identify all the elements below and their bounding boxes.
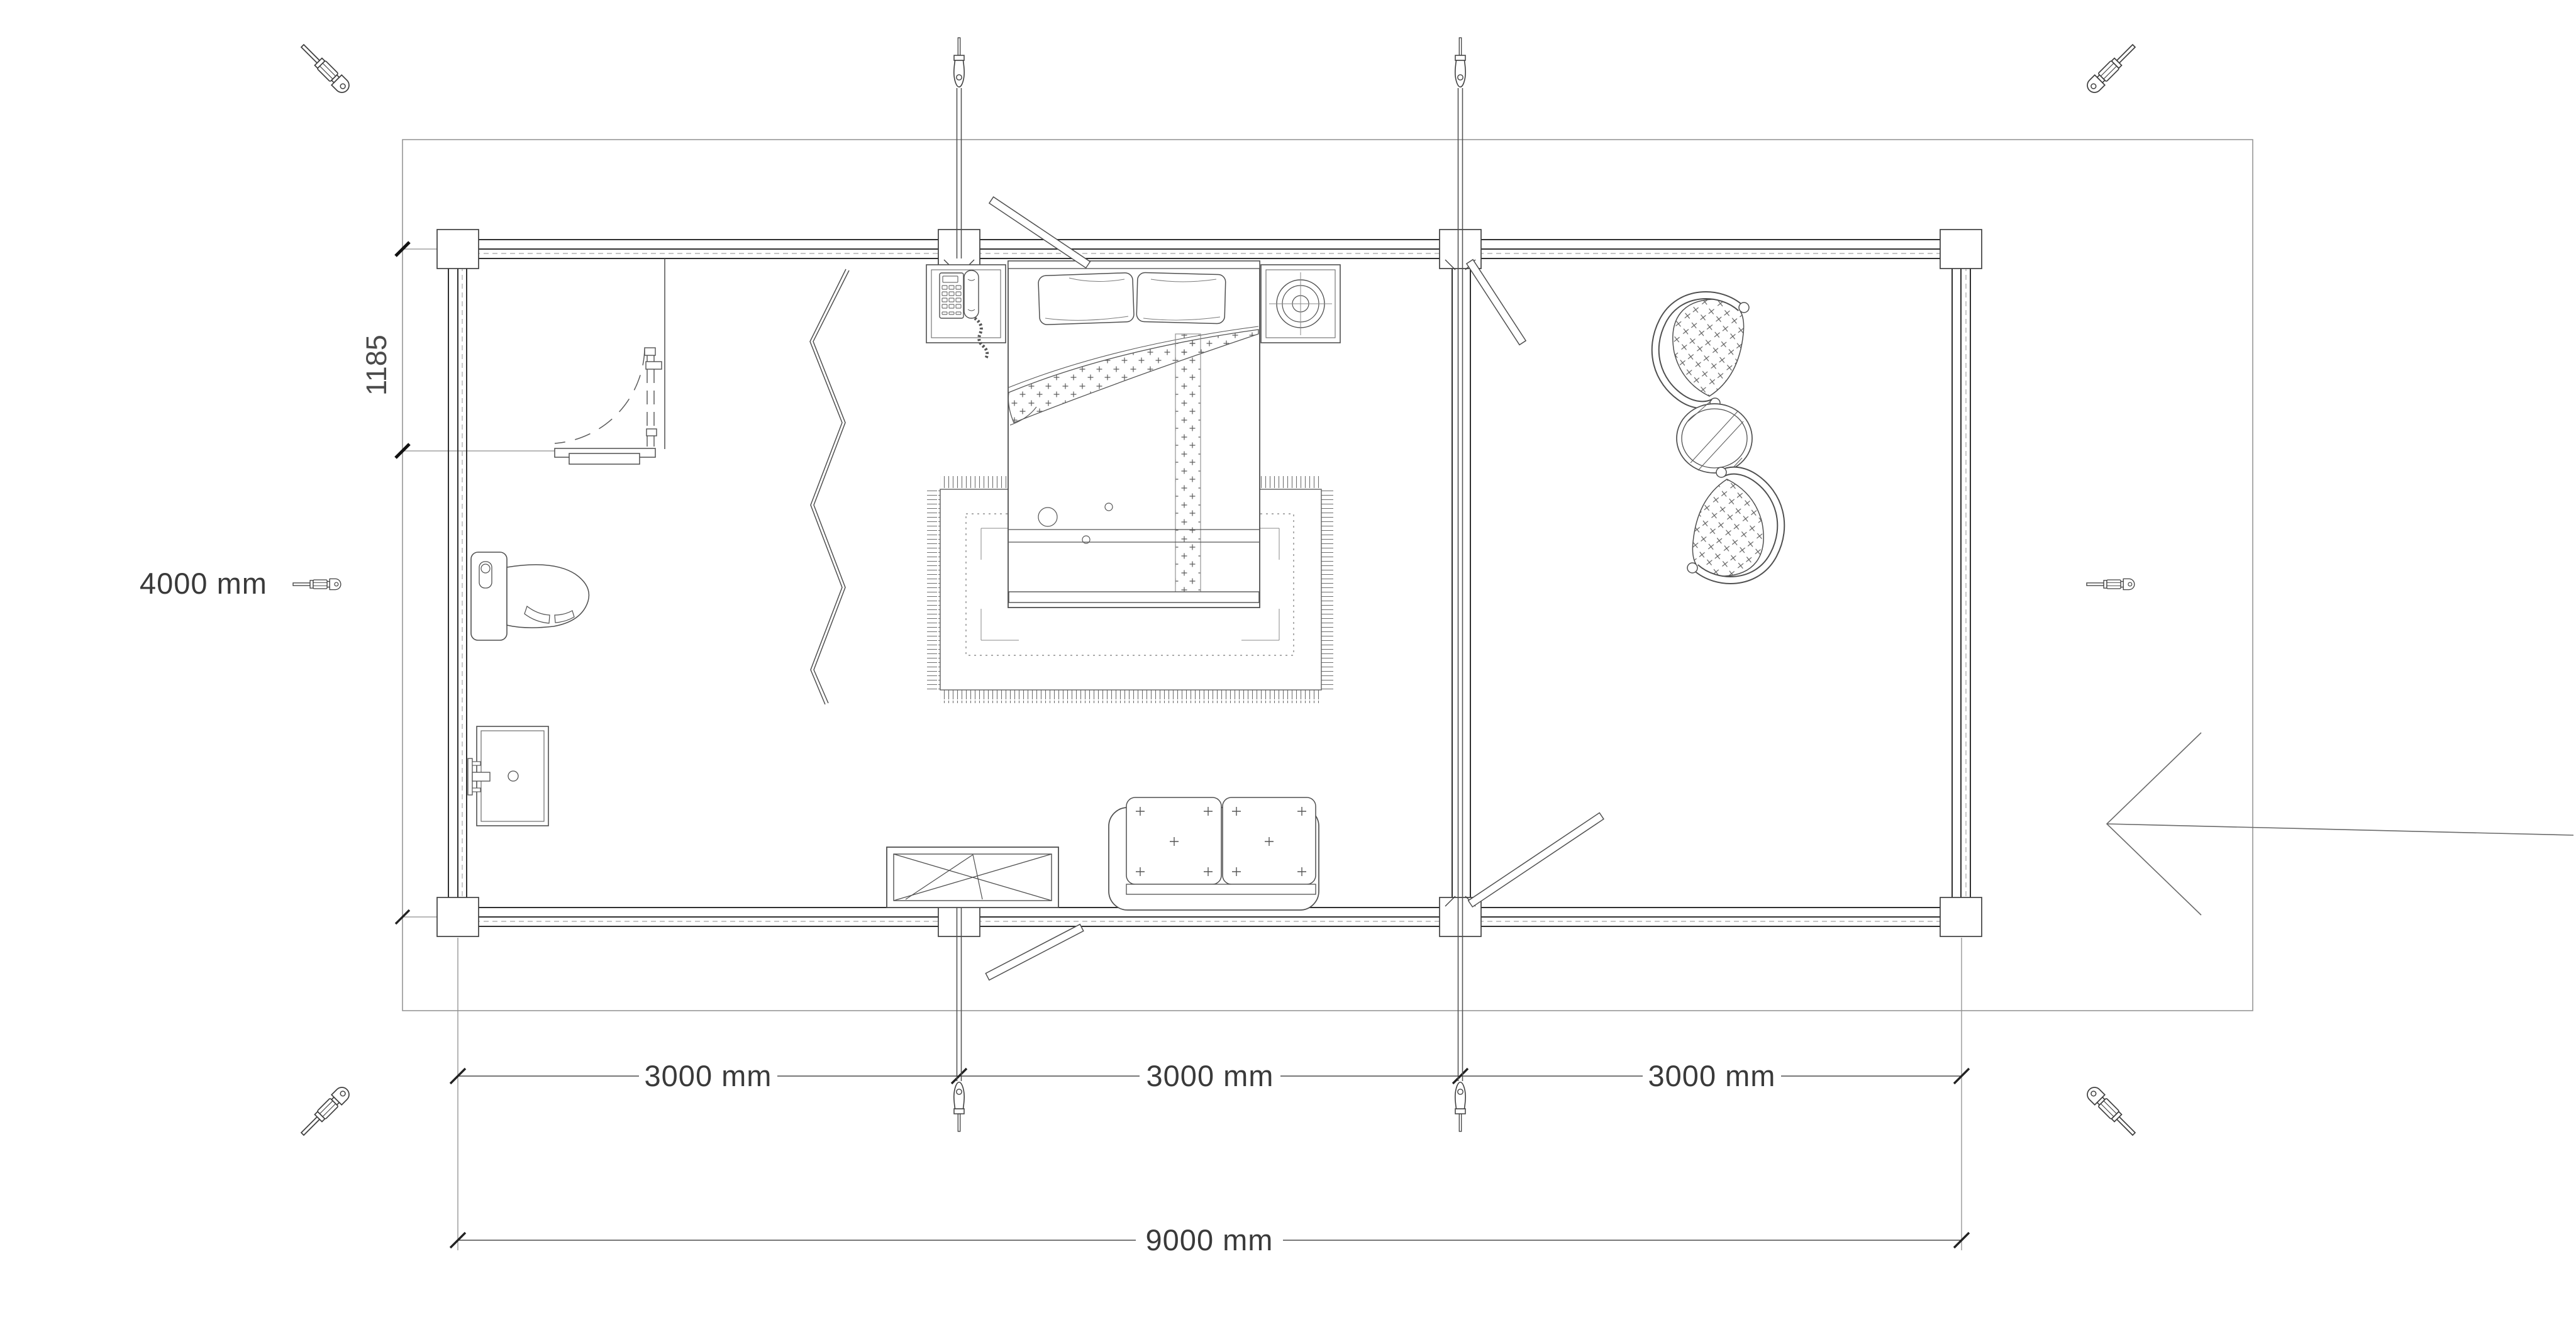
double-bed bbox=[1008, 261, 1260, 608]
module-divider-handle-bottom-2[interactable] bbox=[1455, 1082, 1465, 1131]
resize-handle-bottom-right[interactable] bbox=[2084, 1084, 2139, 1139]
paisley-armchair-bottom bbox=[1687, 467, 1781, 580]
total-width-dimension-label: 9000 mm bbox=[1146, 1223, 1274, 1257]
resize-handle-right[interactable] bbox=[2087, 579, 2135, 589]
height-dimension-label: 4000 mm bbox=[140, 567, 267, 600]
lamp-nightstand bbox=[1261, 265, 1340, 343]
door-offset-dimension-label: 1185 bbox=[360, 335, 392, 396]
door-leaf-bottom-right-room bbox=[1468, 813, 1604, 907]
partition-wall bbox=[1452, 258, 1470, 908]
telephone-nightstand bbox=[926, 265, 1006, 358]
sink-vanity bbox=[468, 726, 548, 826]
bed-runner bbox=[1175, 334, 1201, 593]
floorplan-canvas: 4000 mm 1185 3000 mm 3000 mm 3000 mm 900… bbox=[0, 0, 2576, 1327]
crossed-coffee-table bbox=[887, 847, 1058, 908]
paisley-armchair-top bbox=[1655, 296, 1749, 408]
door-leaf-bottom-left-module bbox=[985, 924, 1083, 980]
module-dimension-label-2: 3000 mm bbox=[1146, 1059, 1274, 1092]
module-dimension-label-3: 3000 mm bbox=[1648, 1059, 1776, 1092]
door-leaf-top-left-module bbox=[989, 197, 1090, 268]
folding-screen bbox=[810, 269, 849, 704]
door-leaf-top-right-room bbox=[1467, 260, 1526, 345]
pillow-right bbox=[1136, 272, 1226, 324]
loveseat-sofa bbox=[1109, 797, 1319, 910]
round-side-table bbox=[1677, 400, 1752, 473]
resize-handle-bottom-left[interactable] bbox=[297, 1084, 352, 1139]
entry-arrow bbox=[2107, 733, 2573, 915]
bathroom-door bbox=[555, 258, 665, 464]
resize-handle-top-right[interactable] bbox=[2084, 41, 2139, 96]
module-divider-handle-top-2[interactable] bbox=[1455, 38, 1465, 87]
module-dimension-label-1: 3000 mm bbox=[645, 1059, 772, 1092]
toilet bbox=[471, 552, 589, 640]
module-divider-handle-bottom-1[interactable] bbox=[954, 1082, 964, 1131]
pillow-left bbox=[1038, 272, 1135, 325]
module-divider-handle-top-1[interactable] bbox=[954, 38, 964, 87]
resize-handle-left[interactable] bbox=[293, 579, 341, 589]
resize-handle-top-left[interactable] bbox=[297, 41, 352, 96]
